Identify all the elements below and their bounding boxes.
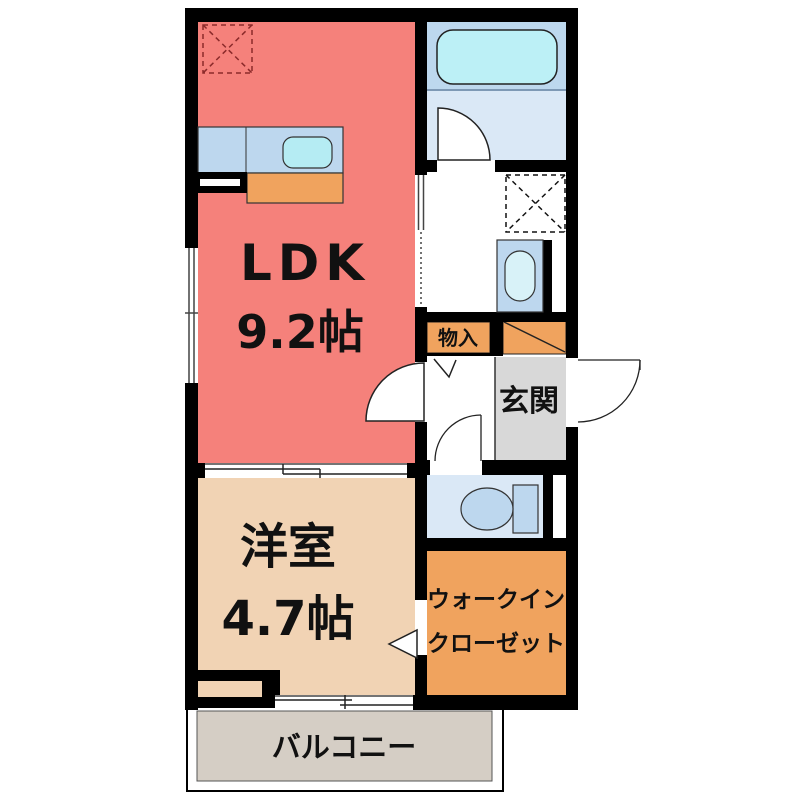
- wall-bath-stub-left: [427, 160, 437, 172]
- wall-center-d: [415, 655, 427, 710]
- bathtub-icon: [437, 30, 557, 84]
- label-storage: 物入: [438, 326, 478, 350]
- room-wic-floor: [427, 551, 566, 695]
- door-toilet-arc: [435, 415, 481, 461]
- door-entrance-arc: [578, 360, 640, 422]
- label-ldk: LDK: [240, 234, 370, 292]
- toilet-icon: [461, 488, 513, 530]
- washing-machine-dashed-box-icon: [506, 175, 565, 232]
- door-storage-fold-mark: [434, 359, 456, 377]
- wall-top: [185, 8, 578, 22]
- kitchen-counter-front: [247, 173, 343, 203]
- wall-toilet-nook-stub: [543, 460, 553, 538]
- wall-center-c: [415, 422, 427, 600]
- toilet-tank: [513, 485, 538, 533]
- room-western-floor: [198, 478, 415, 695]
- wall-slide-stub-right: [407, 463, 427, 478]
- label-western-room-size: 4.7帖: [221, 591, 354, 647]
- storage-underline: [427, 353, 493, 356]
- wall-bottom-right: [413, 695, 578, 710]
- sliding-door-ldk-western: [205, 463, 407, 478]
- label-western-room: 洋室: [240, 519, 336, 575]
- label-ldk-size: 9.2帖: [236, 305, 364, 359]
- wall-washroom-bottom: [415, 312, 566, 322]
- wall-center-a: [415, 8, 427, 175]
- alcove-inner: [198, 681, 262, 697]
- window-balcony: [275, 695, 413, 710]
- label-wic-line2: クローゼット: [427, 631, 565, 657]
- window-ldk-left: [185, 248, 198, 383]
- label-balcony: バルコニー: [272, 730, 416, 764]
- entrance-opening: [566, 358, 578, 427]
- wall-bath-stub-right: [495, 160, 566, 172]
- wall-toilet-wic: [415, 538, 578, 551]
- kitchen-half-wall-slit: [200, 179, 240, 186]
- floor-plan: LDK 9.2帖 洋室 4.7帖 玄関 物入 ウォークイン クローゼット バルコ…: [0, 0, 800, 800]
- kitchen-counter-sink-icon: [283, 137, 332, 168]
- wall-slide-stub-left: [185, 463, 205, 478]
- wall-hall-toilet-right: [482, 460, 578, 475]
- wash-basin-icon: [505, 251, 535, 301]
- wall-storage-divider: [490, 322, 503, 356]
- label-wic-line1: ウォークイン: [427, 587, 565, 613]
- label-entrance: 玄関: [499, 384, 559, 419]
- floor-plan-canvas: LDK 9.2帖 洋室 4.7帖 玄関 物入 ウォークイン クローゼット バルコ…: [0, 0, 800, 800]
- wall-washroom-nook-stub: [543, 240, 552, 312]
